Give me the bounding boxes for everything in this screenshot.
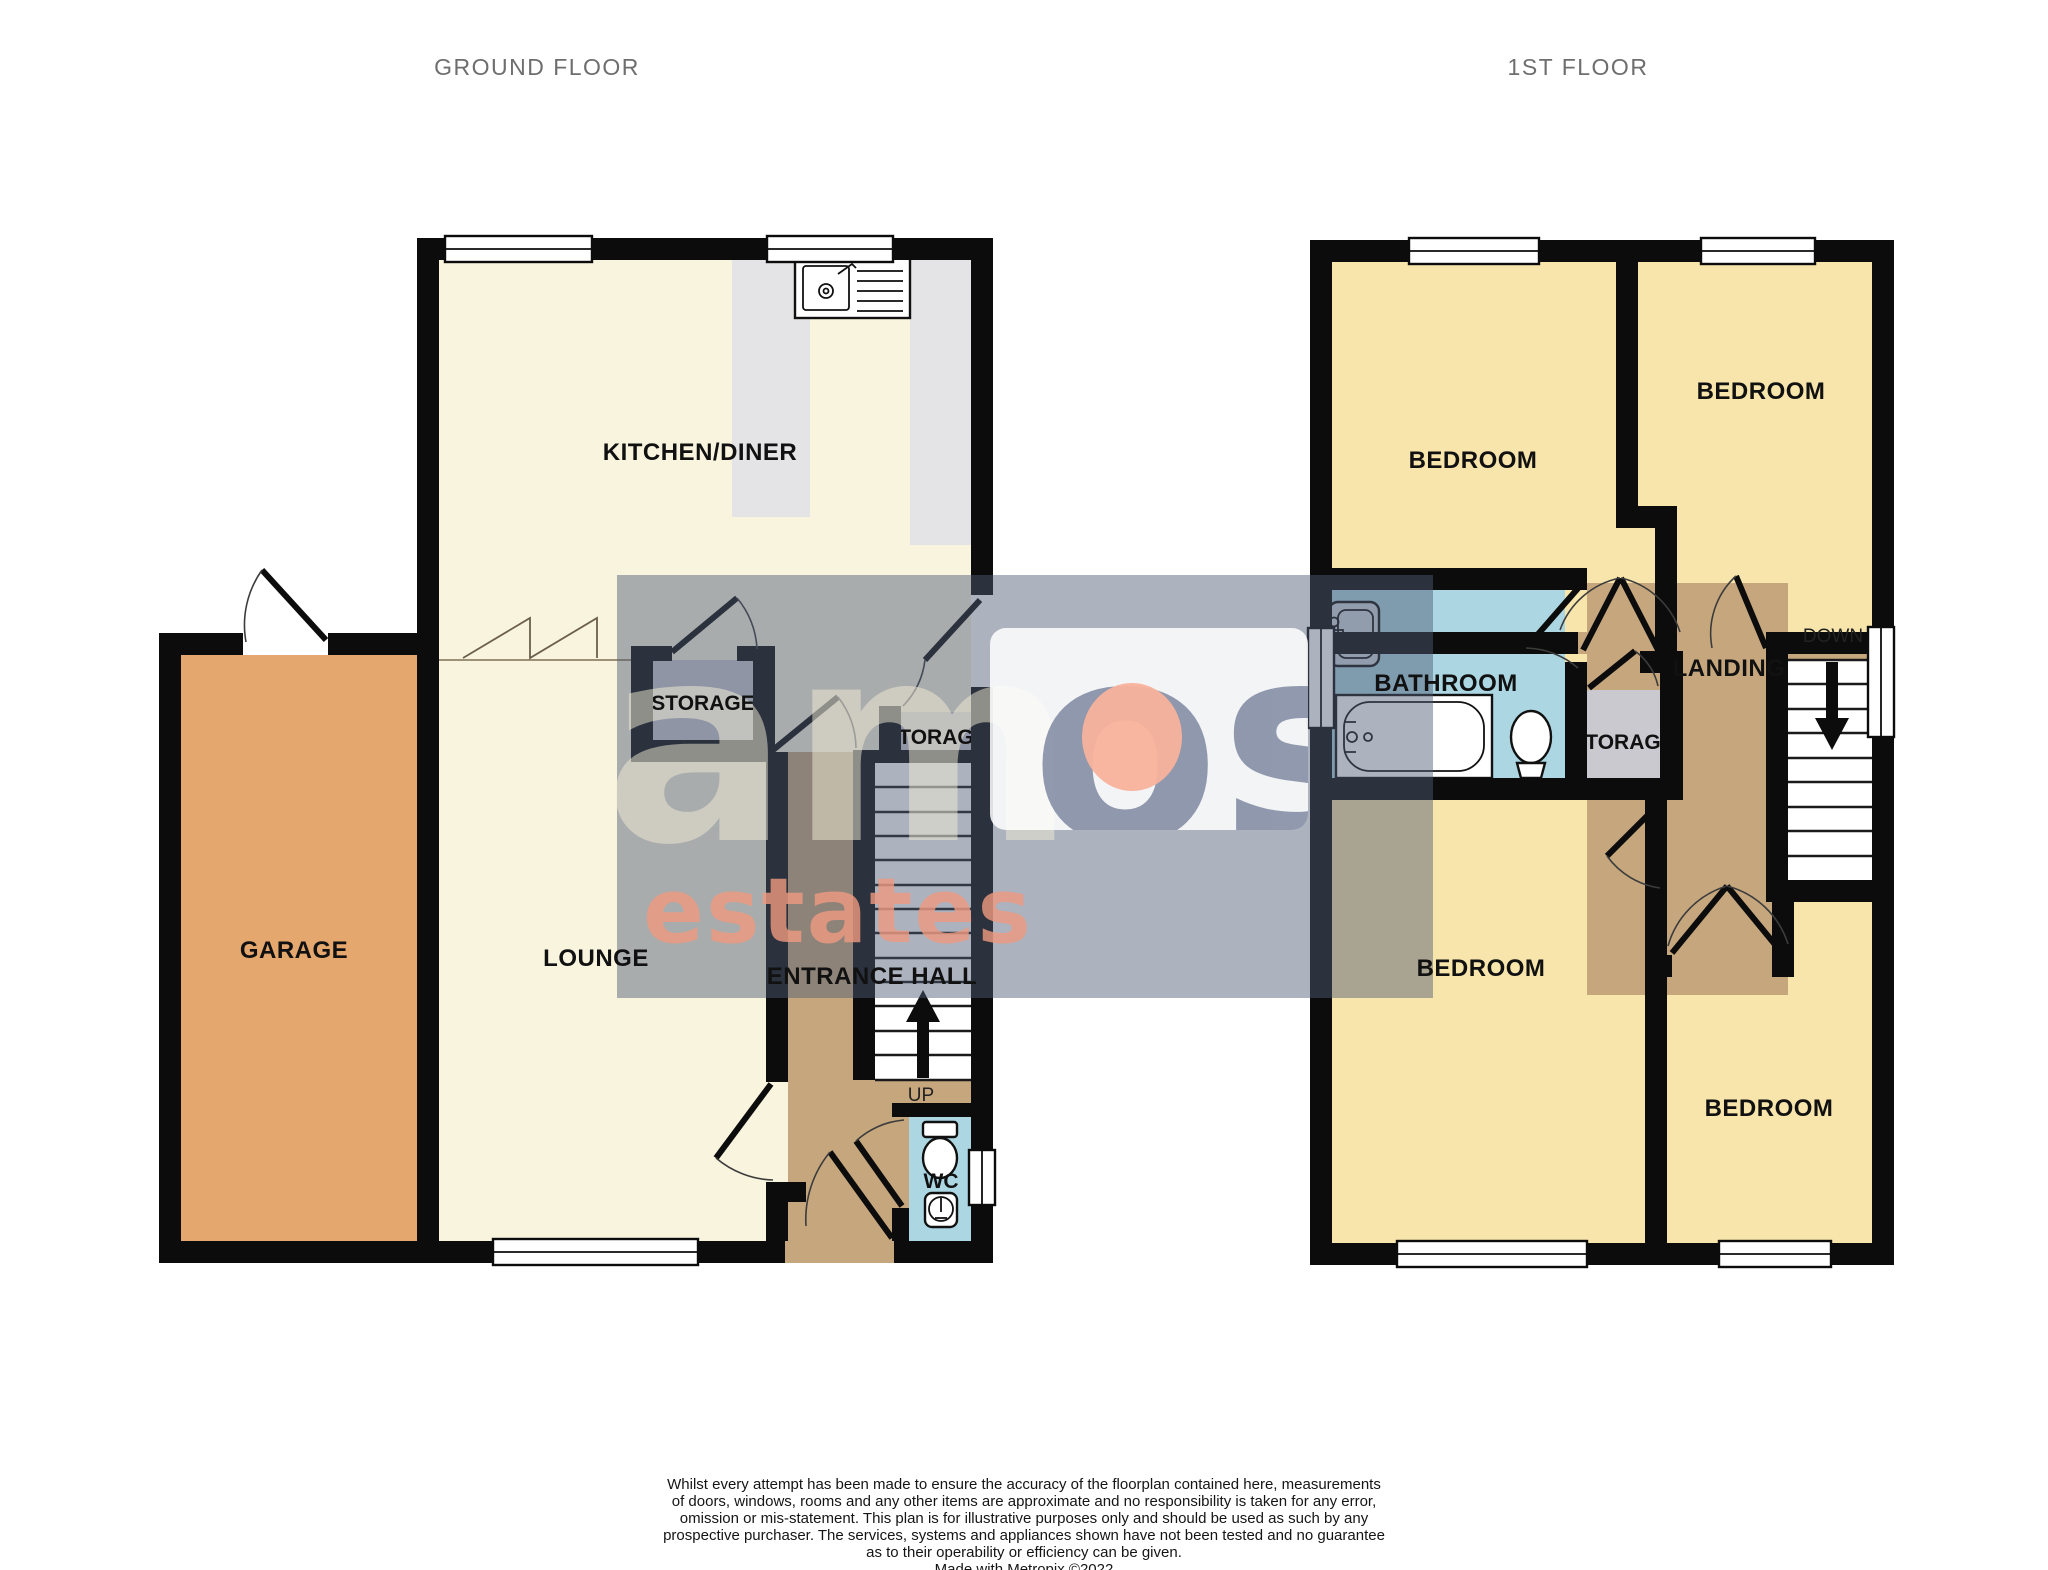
label-storage-kitchen: STORAGE	[651, 692, 754, 715]
label-kitchen-diner: KITCHEN/DINER	[603, 439, 798, 466]
front-door-gap	[785, 1241, 894, 1263]
label-up: UP	[908, 1085, 934, 1106]
disclaimer-line: omission or mis-statement. This plan is …	[680, 1510, 1369, 1527]
label-garage: GARAGE	[240, 937, 348, 964]
watermark-subtitle: estates	[643, 859, 1033, 964]
disclaimer-line: prospective purchaser. The services, sys…	[663, 1527, 1385, 1544]
worktop-right	[910, 258, 971, 545]
ground-floor-title: GROUND FLOOR	[434, 54, 640, 80]
floorplan-svg: am os estates KITCHEN/DINER LOUNGE GARAG…	[0, 0, 2048, 1570]
wc-basin	[925, 1193, 957, 1227]
watermark: am os estates	[604, 575, 1433, 998]
disclaimer-line: as to their operability or efficiency ca…	[866, 1544, 1182, 1561]
label-bedroom-top-right: BEDROOM	[1697, 378, 1826, 405]
disclaimer-line: of doors, windows, rooms and any other i…	[672, 1493, 1377, 1510]
label-bedroom-bottom-right: BEDROOM	[1705, 1095, 1834, 1122]
disclaimer-line: Whilst every attempt has been made to en…	[667, 1476, 1381, 1493]
first-floor-title: 1ST FLOOR	[1508, 54, 1649, 80]
label-down: DOWN	[1803, 626, 1863, 647]
label-landing: LANDING	[1673, 655, 1786, 682]
label-bedroom-top-left: BEDROOM	[1409, 447, 1538, 474]
label-entrance-hall: ENTRANCE HALL	[767, 963, 978, 990]
floorplan-page: am os estates KITCHEN/DINER LOUNGE GARAG…	[0, 0, 2048, 1570]
label-bedroom-bottom-left: BEDROOM	[1417, 955, 1546, 982]
metropix-credit: Made with Metropix ©2022	[935, 1561, 1114, 1570]
bedroom-door-gap-right	[1677, 632, 1766, 654]
kitchen-sink-unit	[795, 258, 910, 318]
label-wc: WC	[924, 1170, 959, 1193]
staircase-first	[1788, 660, 1872, 880]
garage-door-gap	[243, 633, 328, 655]
label-lounge: LOUNGE	[543, 945, 649, 972]
disclaimer: Whilst every attempt has been made to en…	[663, 1476, 1385, 1570]
label-bathroom: BATHROOM	[1374, 670, 1518, 697]
watermark-o-dot	[1082, 683, 1182, 791]
